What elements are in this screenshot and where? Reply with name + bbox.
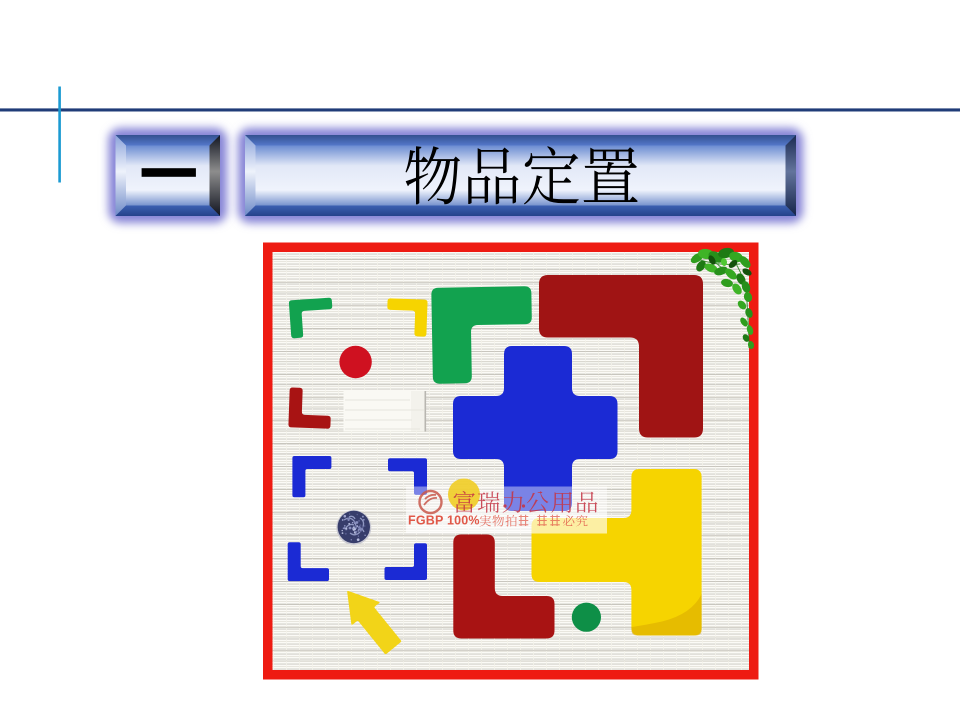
svg-text:FGBP 100%: FGBP 100% [408, 514, 480, 528]
